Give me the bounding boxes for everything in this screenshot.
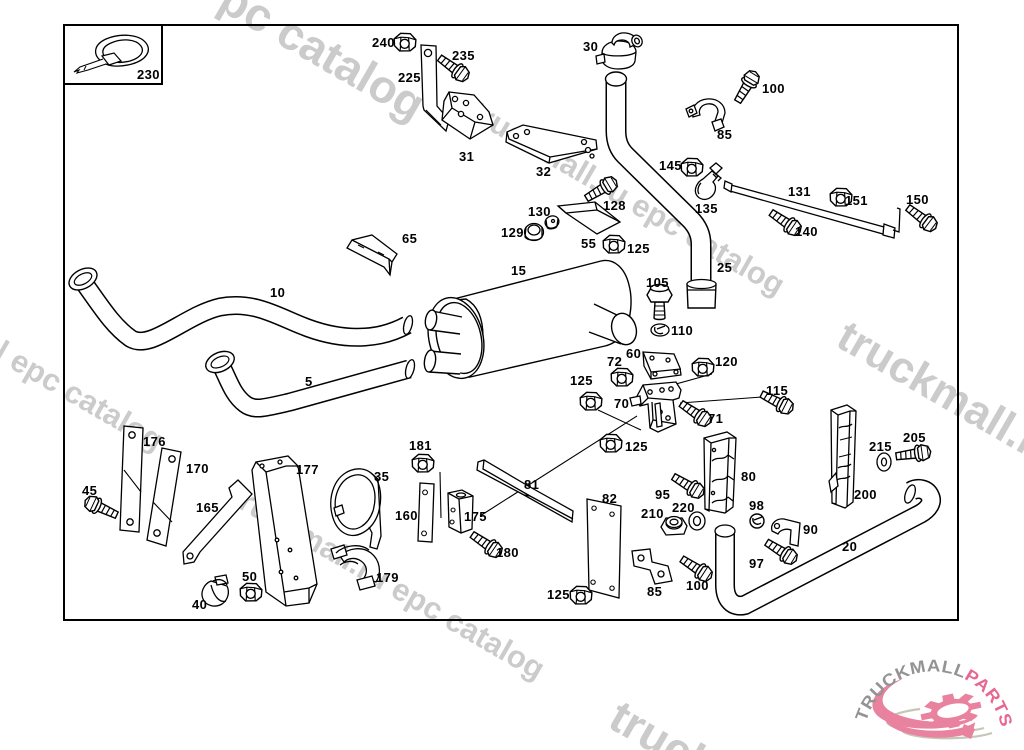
svg-text:165: 165	[196, 500, 219, 515]
svg-text:20: 20	[842, 539, 857, 554]
svg-text:31: 31	[459, 149, 474, 164]
svg-text:80: 80	[741, 469, 756, 484]
svg-text:81: 81	[524, 477, 539, 492]
svg-text:71: 71	[708, 411, 723, 426]
svg-text:70: 70	[614, 396, 629, 411]
svg-text:140: 140	[795, 224, 818, 239]
svg-text:truckmall.ru e: truckmall.ru e	[829, 311, 1024, 498]
svg-text:100: 100	[762, 81, 785, 96]
svg-text:125: 125	[625, 439, 648, 454]
svg-text:180: 180	[496, 545, 519, 560]
svg-text:35: 35	[374, 469, 389, 484]
svg-text:170: 170	[186, 461, 209, 476]
svg-text:98: 98	[749, 498, 764, 513]
svg-text:32: 32	[536, 164, 551, 179]
svg-text:10: 10	[270, 285, 285, 300]
svg-text:30: 30	[583, 39, 598, 54]
svg-text:110: 110	[671, 323, 693, 338]
svg-text:130: 130	[528, 204, 551, 219]
svg-text:235: 235	[452, 48, 475, 63]
svg-text:150: 150	[906, 192, 929, 207]
svg-text:105: 105	[646, 275, 669, 290]
svg-text:60: 60	[626, 346, 641, 361]
svg-text:82: 82	[602, 491, 617, 506]
svg-text:45: 45	[82, 483, 97, 498]
svg-text:100: 100	[686, 578, 709, 593]
svg-text:176: 176	[143, 434, 166, 449]
svg-text:25: 25	[717, 260, 732, 275]
svg-text:5: 5	[305, 374, 313, 389]
svg-text:85: 85	[647, 584, 662, 599]
svg-text:85: 85	[717, 127, 732, 142]
svg-text:230: 230	[137, 67, 160, 82]
svg-text:215: 215	[869, 439, 892, 454]
svg-text:pc catalog: pc catalog	[211, 0, 434, 130]
svg-text:205: 205	[903, 430, 926, 445]
svg-text:72: 72	[607, 354, 622, 369]
svg-text:175: 175	[464, 509, 487, 524]
svg-text:179: 179	[376, 570, 399, 585]
svg-text:177: 177	[296, 462, 319, 477]
svg-text:95: 95	[655, 487, 670, 502]
svg-text:115: 115	[766, 383, 788, 398]
svg-text:220: 220	[672, 500, 695, 515]
svg-text:135: 135	[695, 201, 718, 216]
svg-text:15: 15	[511, 263, 526, 278]
svg-text:129: 129	[501, 225, 524, 240]
svg-text:120: 120	[715, 354, 738, 369]
svg-text:truckmall: truckmall	[601, 690, 804, 750]
svg-text:55: 55	[581, 236, 596, 251]
svg-text:40: 40	[192, 597, 207, 612]
svg-text:210: 210	[641, 506, 664, 521]
svg-text:181: 181	[409, 438, 432, 453]
svg-text:125: 125	[547, 587, 570, 602]
svg-text:50: 50	[242, 569, 257, 584]
svg-text:90: 90	[803, 522, 818, 537]
svg-text:125: 125	[570, 373, 593, 388]
svg-text:131: 131	[788, 184, 811, 199]
svg-text:65: 65	[402, 231, 417, 246]
svg-text:125: 125	[627, 241, 650, 256]
svg-text:225: 225	[398, 70, 421, 85]
svg-text:145: 145	[659, 158, 682, 173]
svg-text:160: 160	[395, 508, 418, 523]
svg-text:151: 151	[845, 193, 868, 208]
svg-text:240: 240	[372, 35, 395, 50]
svg-text:200: 200	[854, 487, 877, 502]
svg-text:97: 97	[749, 556, 764, 571]
